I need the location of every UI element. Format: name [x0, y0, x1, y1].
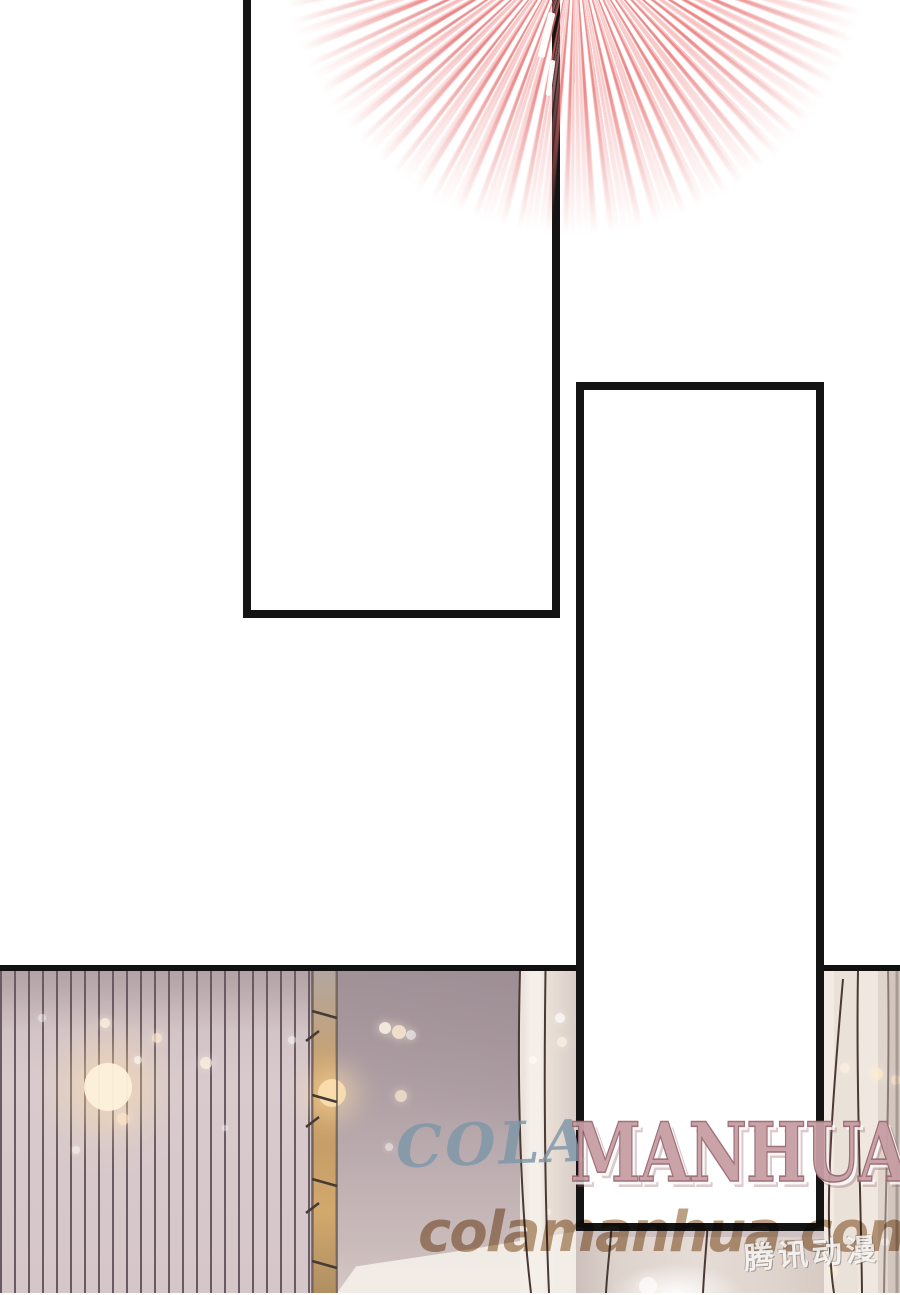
speech-panel-right [576, 382, 824, 1231]
speech-panel-left [243, 0, 560, 618]
comic-page: COLA MANHUA colamanhua.com 腾讯动漫 [0, 0, 900, 1293]
